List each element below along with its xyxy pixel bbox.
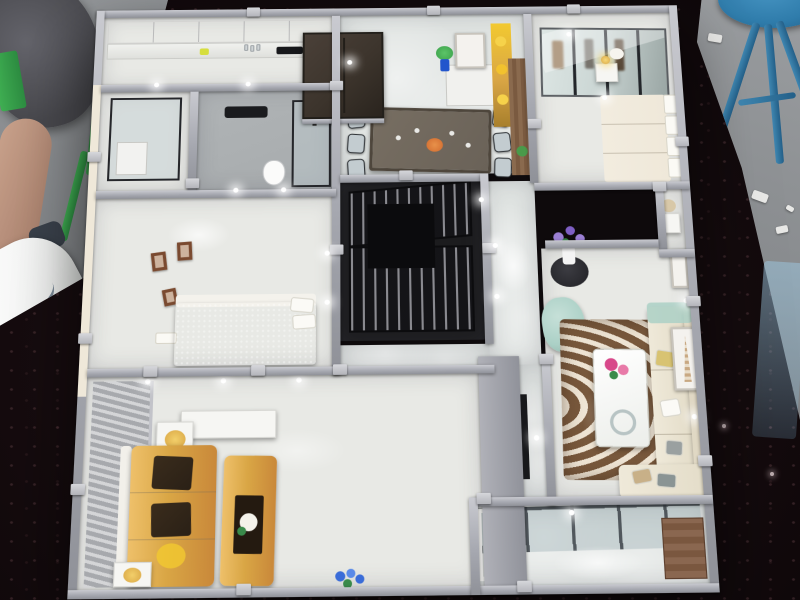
- bed-fold: [601, 123, 667, 125]
- wall-post: [427, 6, 440, 15]
- wall-post: [330, 244, 344, 254]
- glass-bowl: [610, 409, 637, 435]
- gray-pillow: [656, 472, 676, 488]
- wall-post: [686, 296, 701, 306]
- marble-coffee-table: [592, 349, 650, 448]
- wall-led: [534, 435, 540, 440]
- table-glint: [722, 424, 726, 428]
- wall-post: [399, 170, 413, 180]
- bottle: [256, 44, 260, 51]
- wall-post: [143, 366, 157, 377]
- wall-post: [517, 581, 532, 593]
- gold-bench-table: [220, 455, 278, 586]
- white-vase: [562, 246, 575, 264]
- blue-flower: [355, 574, 364, 583]
- wall-led: [692, 414, 698, 419]
- blue-vase: [440, 59, 449, 71]
- pillow: [292, 313, 316, 329]
- wall-led: [325, 251, 330, 256]
- white-pillow: [659, 398, 682, 418]
- sofa-seam: [130, 491, 216, 493]
- wall-led: [566, 32, 571, 37]
- wall-post: [567, 4, 580, 13]
- wall-led: [479, 197, 484, 202]
- towel-rack: [225, 106, 268, 118]
- gold-decor-table: [113, 562, 152, 588]
- wall-frame: [151, 251, 168, 271]
- living-room: [541, 247, 704, 497]
- glass: [449, 131, 454, 136]
- wall-post: [652, 182, 666, 192]
- sideboard-art-frame: [455, 33, 486, 69]
- floor-debris: [707, 33, 722, 43]
- white-media-bench: [180, 410, 276, 439]
- wall-post: [251, 365, 265, 376]
- gold-lounge: [77, 373, 485, 590]
- sofa-seam: [128, 538, 215, 540]
- utility-room: [96, 92, 190, 191]
- wall-post: [330, 81, 343, 91]
- toilet: [262, 160, 285, 186]
- white-appliance: [115, 142, 147, 175]
- dark-cushion: [151, 502, 191, 538]
- bed-fold: [603, 152, 669, 154]
- table-glint: [770, 472, 774, 476]
- glass: [414, 128, 419, 133]
- floor-shine: [495, 241, 533, 292]
- wall-post: [333, 364, 347, 375]
- glass: [396, 135, 401, 140]
- white-flowers: [609, 48, 624, 59]
- wall-led: [296, 377, 301, 382]
- purple-flower: [565, 226, 575, 235]
- study-dark-core: [367, 204, 435, 269]
- bedroom-blue: [87, 197, 336, 369]
- entry-door: [302, 32, 384, 119]
- wall-post: [87, 152, 101, 162]
- dining-chair: [347, 134, 366, 154]
- nook-wall-bottom: [659, 249, 695, 257]
- gold-ornament: [496, 64, 508, 74]
- small-plant: [516, 146, 528, 157]
- blue-flower: [346, 569, 355, 578]
- bottle: [250, 45, 254, 52]
- wall-led: [569, 510, 575, 516]
- wall-post: [186, 178, 200, 188]
- photo-scene: [0, 0, 800, 600]
- floor-shine: [553, 545, 644, 580]
- gold-lamp: [601, 56, 611, 64]
- wall-post: [247, 7, 260, 16]
- floor-debris: [751, 190, 769, 204]
- wall-frame: [177, 242, 192, 261]
- hallway-branch: [340, 344, 490, 367]
- wall-post: [70, 484, 85, 495]
- dark-cushion: [151, 456, 193, 491]
- tv-feature-wall: [478, 356, 528, 595]
- orange-centerpiece: [426, 138, 443, 152]
- plant: [436, 46, 453, 60]
- floor-debris: [785, 204, 794, 212]
- wall-post: [476, 493, 491, 504]
- wall-led: [493, 243, 498, 248]
- bottle: [244, 44, 248, 51]
- wooden-cabinet: [661, 517, 707, 579]
- gold-pillow: [156, 543, 186, 568]
- dining-chair: [494, 157, 512, 177]
- gold-ornament: [495, 36, 506, 46]
- wall-led: [602, 95, 607, 100]
- nightstand: [595, 63, 618, 82]
- wall-post: [675, 137, 689, 147]
- teal-throw: [647, 302, 693, 323]
- cooktop: [276, 47, 302, 55]
- gold-ornament: [497, 94, 509, 105]
- gold-bowl: [123, 568, 142, 583]
- bedroom-hall-wall: [534, 181, 690, 190]
- pink-flower: [618, 365, 629, 376]
- pillow: [290, 297, 315, 314]
- wall-led: [281, 187, 286, 192]
- wall-led: [494, 294, 499, 299]
- sofa-seam: [655, 434, 694, 435]
- green-chair-strut: [59, 150, 89, 241]
- blue-stool-crossbar: [738, 92, 796, 106]
- door-threshold: [302, 118, 384, 124]
- master-bed: [600, 95, 671, 182]
- yellow-kitchen-item: [200, 48, 209, 55]
- wall-led: [347, 60, 352, 65]
- dining-table: [369, 107, 491, 174]
- gray-pillow: [665, 439, 683, 456]
- dining-chair: [492, 132, 512, 153]
- wall-led: [324, 300, 329, 305]
- wall-post: [527, 119, 541, 129]
- kitchen-cabinets: [107, 19, 336, 43]
- wall-post: [539, 354, 553, 365]
- wall-post: [236, 584, 251, 596]
- floor-debris: [775, 225, 788, 234]
- glass: [466, 143, 471, 148]
- wall-post: [78, 333, 92, 344]
- wall-led: [221, 378, 227, 383]
- wall-post: [698, 455, 713, 466]
- living-top-wall: [545, 239, 659, 248]
- apartment-scale-model: [67, 5, 720, 599]
- study: [340, 181, 485, 341]
- pink-flower: [604, 358, 617, 371]
- flower-leaves: [609, 371, 618, 380]
